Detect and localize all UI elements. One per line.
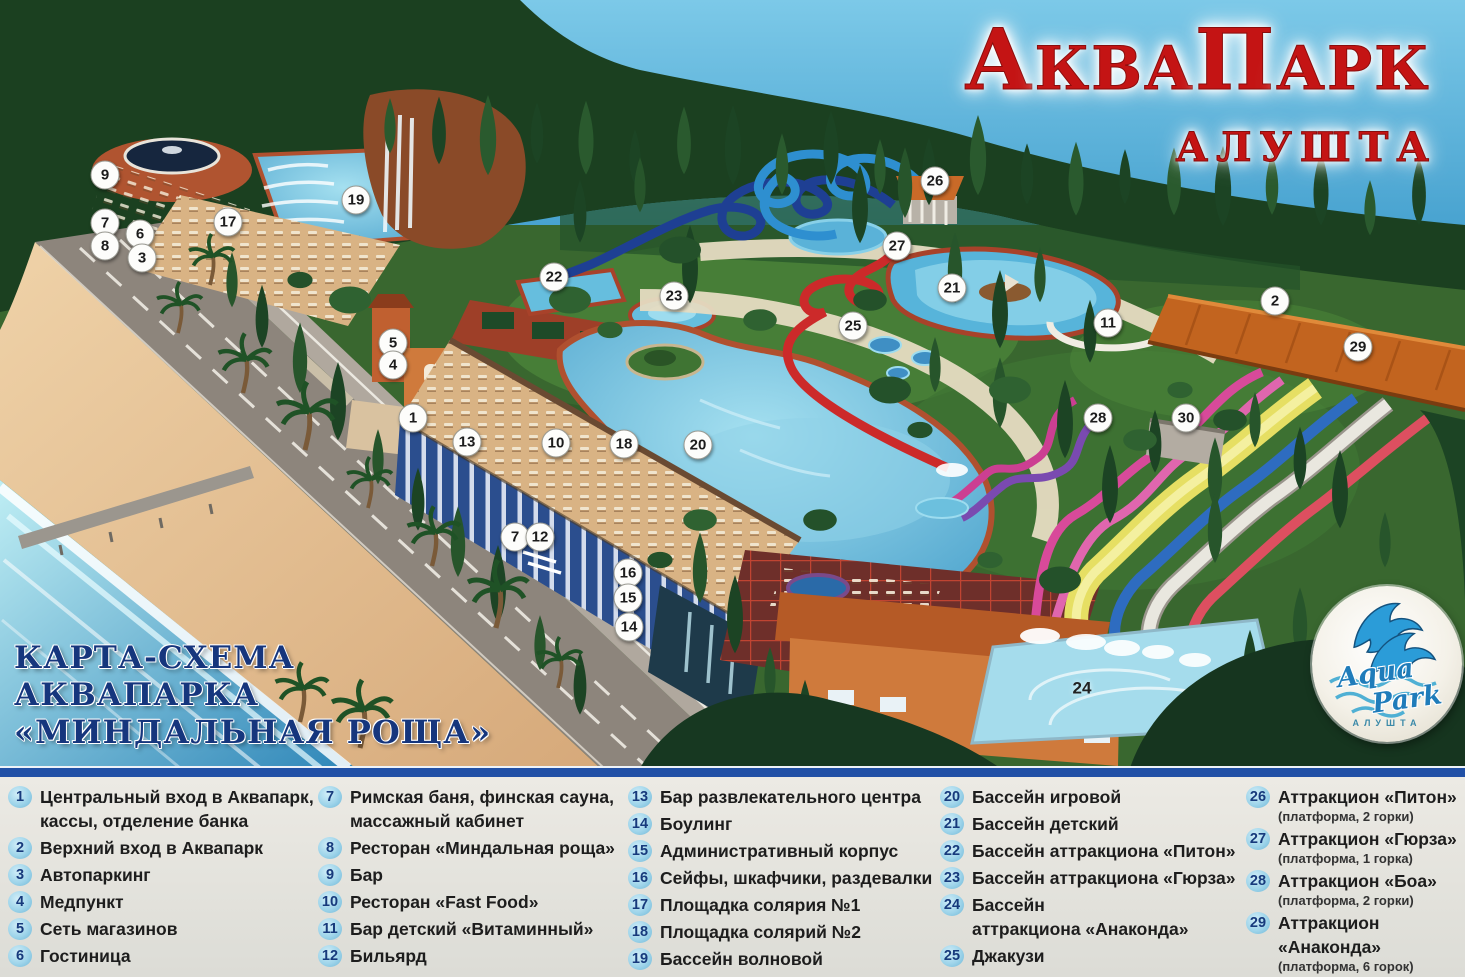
legend-number-17: 17 <box>628 894 652 916</box>
legend-column-5: 26Аттракцион «Питон»(платформа, 2 горки)… <box>1246 785 1465 977</box>
legend-item-27: 27Аттракцион «Гюрза»(платформа, 1 горка) <box>1246 827 1465 866</box>
legend-label-11: Бар детский «Витаминный» <box>350 917 593 941</box>
legend-number-9: 9 <box>318 864 342 886</box>
park-title-name: АКВАПАРК <box>940 14 1455 130</box>
legend-item-15: 15Административный корпус <box>628 839 940 863</box>
logo-city: АЛУШТА <box>1312 718 1462 728</box>
legend-number-20: 20 <box>940 786 964 808</box>
legend-item-29: 29Аттракцион «Анаконда»(платформа, 6 гор… <box>1246 911 1465 974</box>
legend-number-3: 3 <box>8 864 32 886</box>
legend-label-9: Бар <box>350 863 383 887</box>
legend-item-6: 6Гостиница <box>8 944 318 968</box>
aquapark-logo: Aqua Park АЛУШТА <box>1312 586 1462 742</box>
legend-item-19: 19Бассейн волновой <box>628 947 940 971</box>
legend-item-24: 24Бассейн аттракциона «Анаконда» <box>940 893 1246 941</box>
legend-label-16: Сейфы, шкафчики, раздевалки <box>660 866 932 890</box>
legend-item-12: 12Бильярд <box>318 944 628 968</box>
legend-label-10: Ресторан «Fast Food» <box>350 890 538 914</box>
legend-item-13: 13Бар развлекательного центра <box>628 785 940 809</box>
legend-number-8: 8 <box>318 837 342 859</box>
legend-divider <box>0 766 1465 777</box>
legend-label-14: Боулинг <box>660 812 732 836</box>
legend-item-4: 4Медпункт <box>8 890 318 914</box>
legend-label-17: Площадка солярия №1 <box>660 893 860 917</box>
legend-number-5: 5 <box>8 918 32 940</box>
legend-item-11: 11Бар детский «Витаминный» <box>318 917 628 941</box>
legend-label-8: Ресторан «Миндальная роща» <box>350 836 615 860</box>
legend-number-10: 10 <box>318 891 342 913</box>
legend-column-1: 1Центральный вход в Аквапарк, кассы, отд… <box>8 785 318 977</box>
legend-number-2: 2 <box>8 837 32 859</box>
legend-number-28: 28 <box>1246 870 1270 892</box>
legend-number-12: 12 <box>318 945 342 967</box>
legend-number-15: 15 <box>628 840 652 862</box>
legend: 1Центральный вход в Аквапарк, кассы, отд… <box>0 777 1465 977</box>
legend-item-5: 5Сеть магазинов <box>8 917 318 941</box>
legend-label-20: Бассейн игровой <box>972 785 1121 809</box>
legend-column-3: 13Бар развлекательного центра14Боулинг15… <box>628 785 940 977</box>
legend-item-16: 16Сейфы, шкафчики, раздевалки <box>628 866 940 890</box>
park-title: АКВАПАРК АЛУШТА <box>940 14 1455 171</box>
legend-label-29: Аттракцион «Анаконда»(платформа, 6 горок… <box>1278 911 1465 974</box>
legend-label-6: Гостиница <box>40 944 131 968</box>
legend-label-2: Верхний вход в Аквапарк <box>40 836 263 860</box>
legend-item-28: 28Аттракцион «Боа»(платформа, 2 горки) <box>1246 869 1465 908</box>
legend-label-28: Аттракцион «Боа»(платформа, 2 горки) <box>1278 869 1437 908</box>
legend-number-11: 11 <box>318 918 342 940</box>
legend-note-26: (платформа, 2 горки) <box>1278 809 1457 824</box>
legend-label-1: Центральный вход в Аквапарк, кассы, отде… <box>40 785 314 833</box>
legend-number-7: 7 <box>318 786 342 808</box>
legend-number-4: 4 <box>8 891 32 913</box>
legend-label-21: Бассейн детский <box>972 812 1119 836</box>
legend-label-19: Бассейн волновой <box>660 947 823 971</box>
map-caption: КАРТА-СХЕМА АКВАПАРКА «МИНДАЛЬНАЯ РОЩА» <box>14 640 491 751</box>
legend-note-28: (платформа, 2 горки) <box>1278 893 1437 908</box>
legend-number-16: 16 <box>628 867 652 889</box>
legend-item-3: 3Автопаркинг <box>8 863 318 887</box>
legend-note-27: (платформа, 1 горка) <box>1278 851 1457 866</box>
legend-item-23: 23Бассейн аттракциона «Гюрза» <box>940 866 1246 890</box>
legend-label-15: Административный корпус <box>660 839 898 863</box>
legend-label-23: Бассейн аттракциона «Гюрза» <box>972 866 1235 890</box>
legend-item-25: 25Джакузи <box>940 944 1246 968</box>
legend-number-21: 21 <box>940 813 964 835</box>
legend-item-18: 18Площадка солярий №2 <box>628 920 940 944</box>
legend-item-26: 26Аттракцион «Питон»(платформа, 2 горки) <box>1246 785 1465 824</box>
legend-label-7: Римская баня, финская сауна, массажный к… <box>350 785 614 833</box>
legend-item-14: 14Боулинг <box>628 812 940 836</box>
legend-item-9: 9Бар <box>318 863 628 887</box>
legend-number-19: 19 <box>628 948 652 970</box>
legend-label-26: Аттракцион «Питон»(платформа, 2 горки) <box>1278 785 1457 824</box>
legend-number-25: 25 <box>940 945 964 967</box>
legend-number-24: 24 <box>940 894 964 916</box>
legend-item-7: 7Римская баня, финская сауна, массажный … <box>318 785 628 833</box>
legend-item-22: 22Бассейн аттракциона «Питон» <box>940 839 1246 863</box>
legend-number-6: 6 <box>8 945 32 967</box>
legend-label-25: Джакузи <box>972 944 1045 968</box>
legend-columns: 1Центральный вход в Аквапарк, кассы, отд… <box>0 777 1465 977</box>
legend-item-21: 21Бассейн детский <box>940 812 1246 836</box>
legend-number-13: 13 <box>628 786 652 808</box>
legend-label-13: Бар развлекательного центра <box>660 785 921 809</box>
legend-number-22: 22 <box>940 840 964 862</box>
legend-label-24: Бассейн аттракциона «Анаконда» <box>972 893 1188 941</box>
legend-item-20: 20Бассейн игровой <box>940 785 1246 809</box>
legend-label-22: Бассейн аттракциона «Питон» <box>972 839 1236 863</box>
legend-item-8: 8Ресторан «Миндальная роща» <box>318 836 628 860</box>
legend-item-10: 10Ресторан «Fast Food» <box>318 890 628 914</box>
legend-number-18: 18 <box>628 921 652 943</box>
legend-column-2: 7Римская баня, финская сауна, массажный … <box>318 785 628 977</box>
legend-column-4: 20Бассейн игровой21Бассейн детский22Басс… <box>940 785 1246 977</box>
legend-number-27: 27 <box>1246 828 1270 850</box>
legend-number-14: 14 <box>628 813 652 835</box>
legend-item-2: 2Верхний вход в Аквапарк <box>8 836 318 860</box>
legend-label-5: Сеть магазинов <box>40 917 178 941</box>
legend-label-4: Медпункт <box>40 890 124 914</box>
aquapark-poster: АКВАПАРК АЛУШТА КАРТА-СХЕМА АКВАПАРКА «М… <box>0 0 1465 977</box>
legend-number-29: 29 <box>1246 912 1270 934</box>
legend-label-27: Аттракцион «Гюрза»(платформа, 1 горка) <box>1278 827 1457 866</box>
legend-note-29: (платформа, 6 горок) <box>1278 959 1465 974</box>
legend-number-1: 1 <box>8 786 32 808</box>
legend-label-18: Площадка солярий №2 <box>660 920 861 944</box>
legend-label-3: Автопаркинг <box>40 863 151 887</box>
legend-label-12: Бильярд <box>350 944 427 968</box>
legend-item-17: 17Площадка солярия №1 <box>628 893 940 917</box>
park-title-city: АЛУШТА <box>940 124 1455 171</box>
legend-item-1: 1Центральный вход в Аквапарк, кассы, отд… <box>8 785 318 833</box>
legend-number-26: 26 <box>1246 786 1270 808</box>
legend-number-23: 23 <box>940 867 964 889</box>
